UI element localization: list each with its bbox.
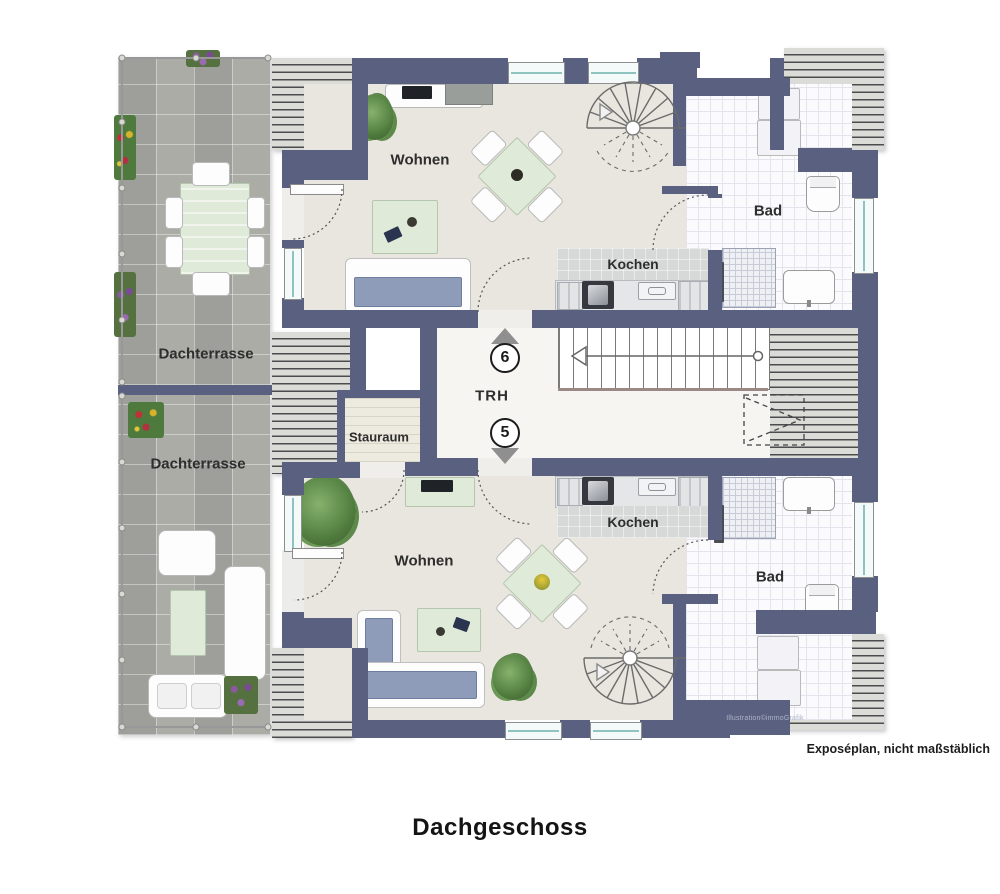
corner-sofa [357,662,485,708]
door-opening [282,550,304,612]
kitchen-sink [638,282,676,300]
door-opening [282,188,304,240]
sofa [345,258,471,314]
room-label-bath-upper: Bad [754,203,782,220]
wall-segment [798,148,852,172]
roof-slope-hatch [770,328,858,458]
terrace-table [170,590,206,656]
wall-segment [282,310,478,328]
wall-segment [673,78,686,166]
plant [492,654,534,700]
terrace-armchair [158,530,216,576]
stove [582,281,614,309]
flower-box [224,676,258,714]
washbasin [783,477,835,511]
unit-number-badge-upper: 6 [490,343,520,373]
tv [402,86,432,99]
shower [722,477,776,539]
room-label-terrace-top: Dachterrasse [158,346,253,363]
wall-segment [852,576,878,612]
wall-segment [352,58,508,84]
page-title: Dachgeschoss [412,814,587,842]
wall-segment [350,318,366,392]
void-area [366,328,420,392]
laptop [383,226,402,243]
wall-segment [282,240,304,248]
terrace-chair [192,272,230,296]
stair-shadow [558,388,768,391]
wall-segment [437,458,478,476]
window [854,502,874,578]
wall-segment [532,458,878,476]
wall-segment [662,594,718,604]
wall-segment [118,385,272,395]
roof-slope-hatch [272,332,350,392]
pillow [157,683,187,709]
wall-segment [282,476,304,495]
toilet [806,176,840,212]
laptop [453,617,471,632]
illustration-credit: Illustration©immoGrafik [720,715,810,722]
terrace-chair [192,162,230,186]
coffee-table [417,608,481,652]
room-label-living-upper: Wohnen [391,152,450,169]
wall-segment [337,390,437,398]
table-decor [436,627,445,636]
disclaimer-text: Exposéplan, nicht maßstäblich [770,742,990,756]
kitchen-cabinet [678,281,710,311]
wall-segment [852,476,878,502]
unit-number-badge-lower: 5 [490,418,520,448]
wall-segment [858,318,878,476]
flower-box [128,402,164,438]
wall-segment [660,52,700,68]
wall-segment [560,720,590,738]
kitchen-cabinet [557,282,583,310]
wall-segment [405,462,438,476]
door-opening [478,310,532,328]
wall-segment [282,618,352,648]
stove [582,477,614,505]
terrace-chair [247,236,265,268]
terrace-sofa [224,566,266,680]
table-decor [407,217,417,227]
kitchen-cabinet [678,477,710,507]
window [508,62,565,84]
room-label-bath-lower: Bad [756,569,784,586]
flower-box [186,50,220,67]
room-label-living-lower: Wohnen [395,553,454,570]
shower [722,248,776,308]
window [284,248,302,300]
sofa-cushion [354,277,462,307]
wall-segment [282,150,352,180]
kitchen-cabinet [557,478,583,506]
wall-segment [532,310,878,328]
wall-segment [662,186,718,194]
flower-box [114,272,136,337]
wall-segment [708,476,722,540]
arrow-up-icon [491,328,519,344]
room-label-storage: Stauraum [349,430,409,445]
sideboard [445,83,493,105]
coffee-table [372,200,438,254]
flower-box [114,115,136,180]
wall-segment [673,604,686,720]
washbasin [783,270,835,304]
terrace-dining-table [180,183,250,275]
pillow [191,683,221,709]
sofa-cushion [365,671,477,699]
terrace-chair [165,197,183,229]
floor-plan: Wohnen Kochen Bad Dachterrasse Dachterra… [0,0,1000,894]
door-opening [360,462,405,478]
tv [421,480,453,492]
wall-segment [770,58,784,150]
wall-segment [756,610,876,634]
straight-staircase [558,326,770,390]
room-label-terrace-bottom: Dachterrasse [150,456,245,473]
bath-cabinet [757,636,799,670]
window [588,62,639,84]
room-label-kitchen-upper: Kochen [607,256,658,272]
room-label-kitchen-lower: Kochen [607,514,658,530]
wall-segment [352,720,505,738]
wall-segment [852,150,878,198]
arrow-down-icon [491,448,519,464]
window [854,198,874,274]
wall-segment [563,58,588,84]
window [505,722,562,740]
terrace-chair [247,197,265,229]
terrace-lounger [148,674,228,718]
terrace-chair [165,236,183,268]
window [590,722,642,740]
door-leaf [290,184,344,195]
window [284,495,302,552]
kitchen-sink [638,478,676,496]
door-leaf [292,548,344,559]
room-label-stairwell: TRH [475,388,509,405]
wall-segment [708,194,722,198]
